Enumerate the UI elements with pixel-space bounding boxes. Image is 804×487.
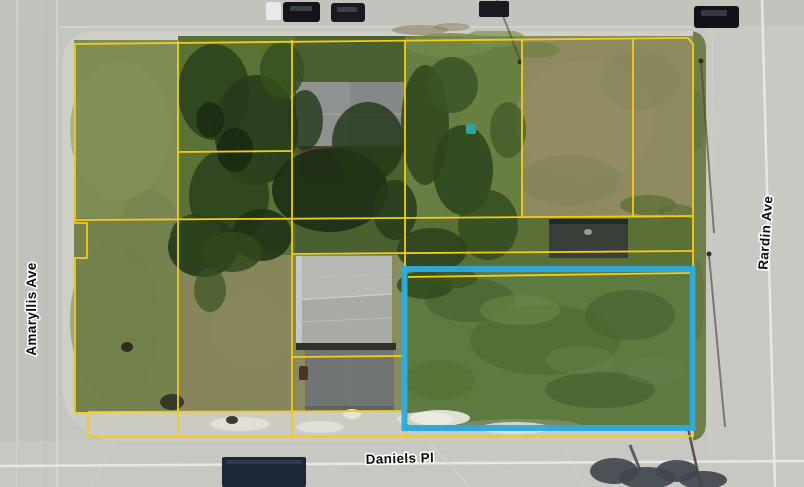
street-label-amaryllis: Amaryllis Ave [24,262,39,356]
aerial-map-view[interactable]: Amaryllis Ave Rardin Ave Daniels Pl [0,0,804,487]
building-gap-shadow [296,343,396,350]
truck-bottom [222,457,306,487]
aerial-map-canvas[interactable]: Amaryllis Ave Rardin Ave Daniels Pl [0,0,804,487]
pool-object [466,124,476,134]
building-warehouse-dark [299,350,394,419]
building-warehouse-light [296,256,392,343]
street-label-daniels: Daniels Pl [365,450,434,467]
